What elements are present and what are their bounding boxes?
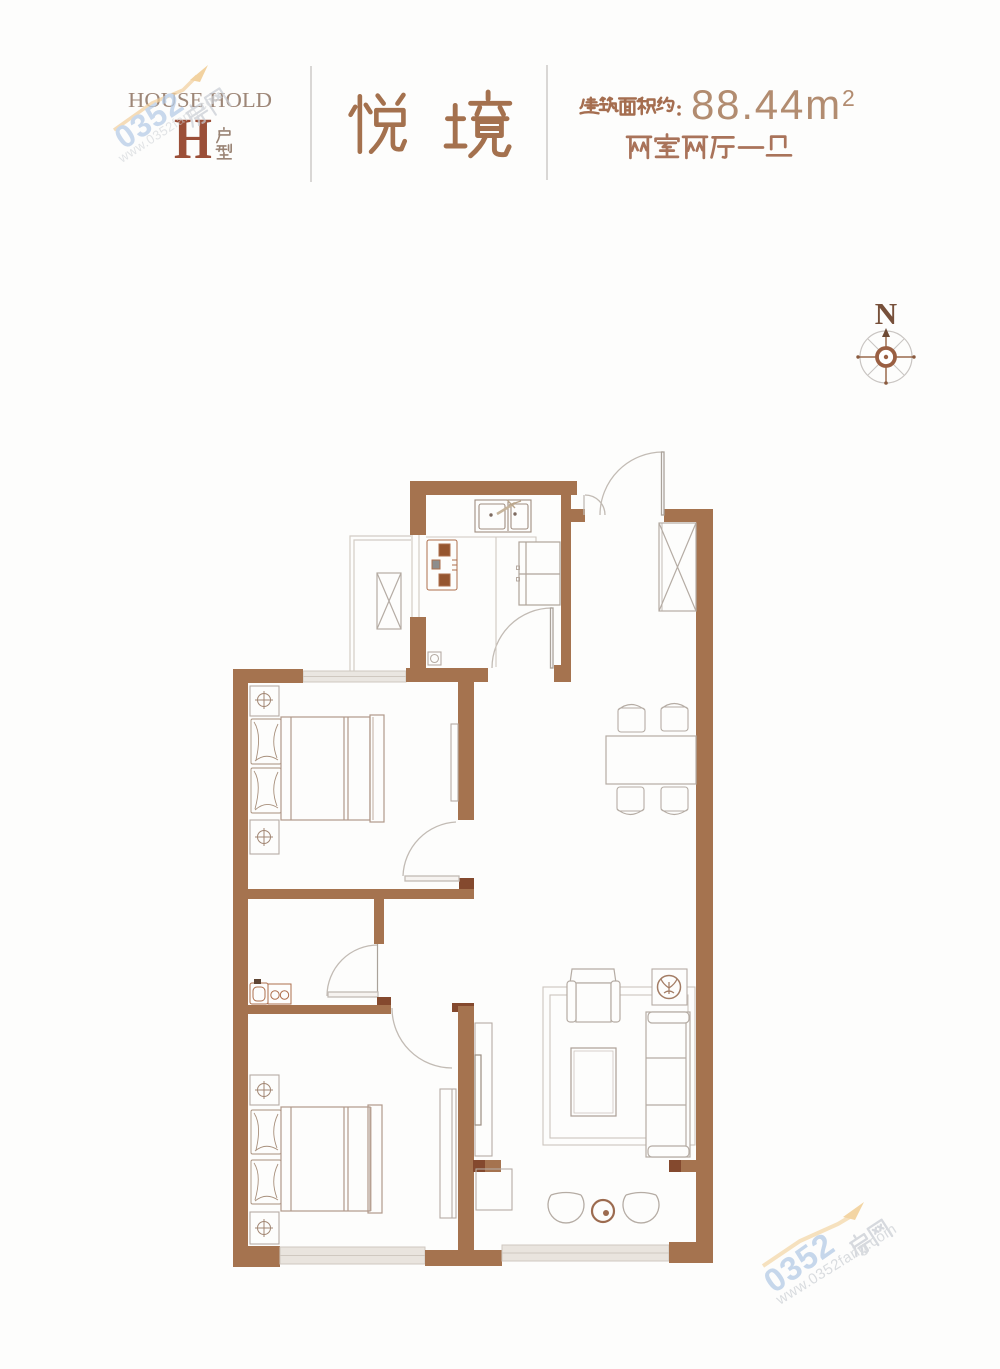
svg-text:2: 2 [842,85,855,111]
svg-text:N: N [875,296,897,331]
svg-text:88.44m: 88.44m [691,81,842,128]
